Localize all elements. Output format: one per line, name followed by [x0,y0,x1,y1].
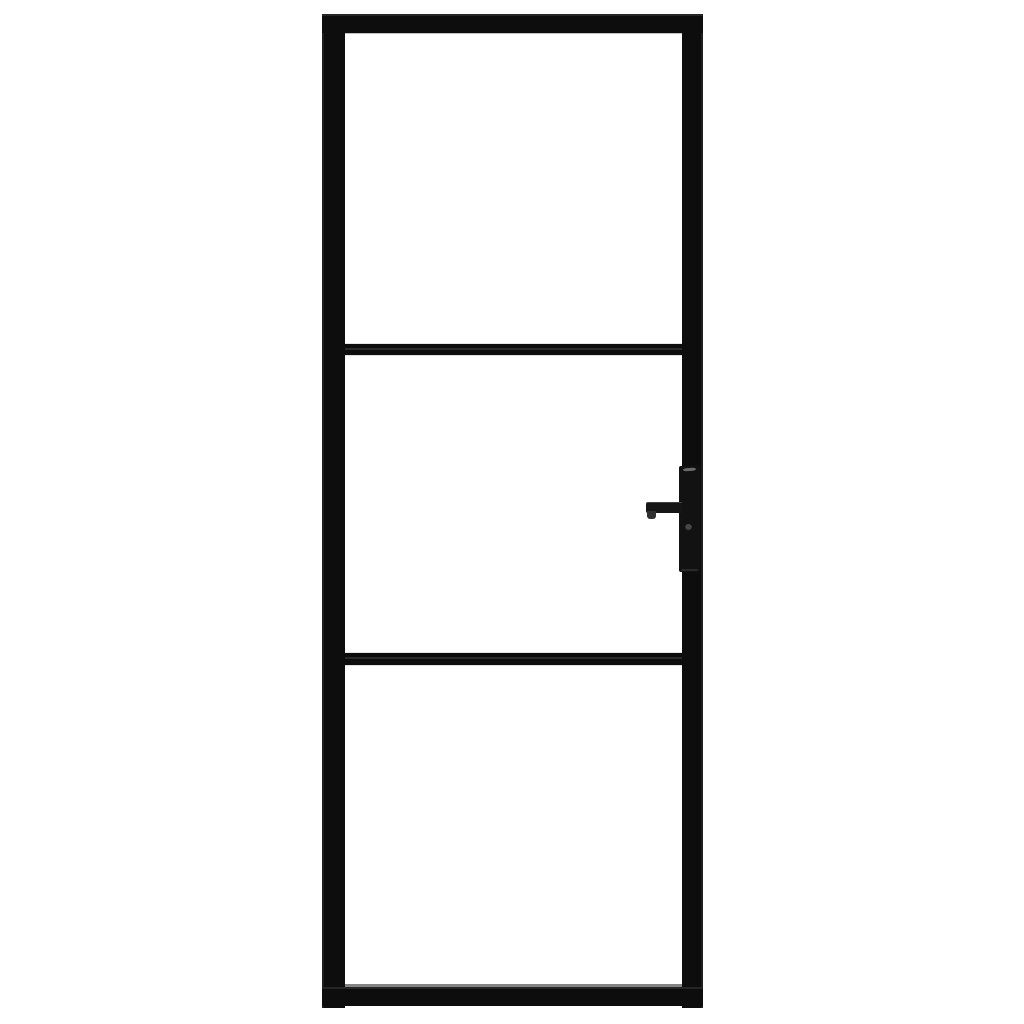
door-frame-left-stile [322,14,345,1008]
product-photo-door [0,0,1024,1024]
keyhole [685,524,692,531]
muntin-bar-lower [345,653,682,665]
door-frame-top-rail [322,14,703,33]
glass-panel-bottom [345,665,682,984]
glass-panel-middle [345,355,682,653]
door-handle-lever-end [647,511,656,519]
glass-panel-top [345,33,682,344]
backplate-bottom-highlight [681,569,698,571]
handle-backplate [679,466,700,572]
muntin-bar-upper [345,344,682,355]
door-frame-bottom-rail [322,987,703,1006]
